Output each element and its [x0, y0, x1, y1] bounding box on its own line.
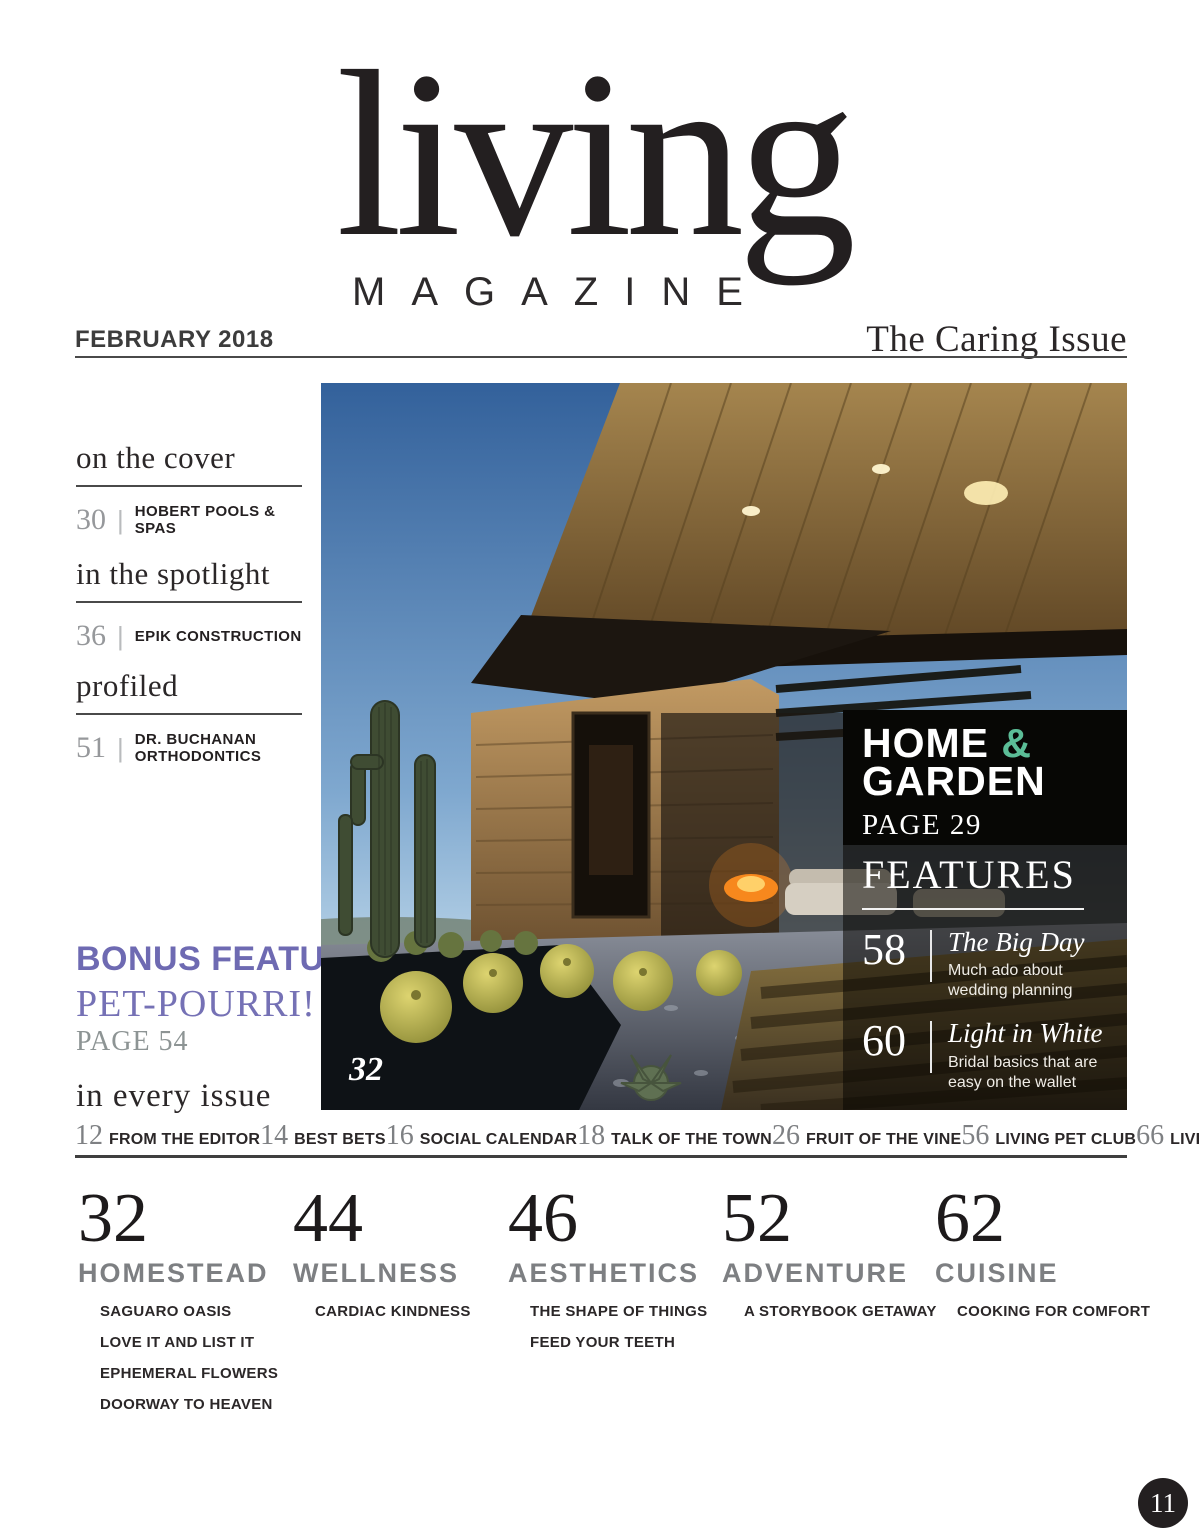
department-adventure: 52 ADVENTURE A STORYBOOK GETAWAY	[722, 1184, 937, 1320]
item-label: LIVING PET CLUB	[995, 1131, 1136, 1148]
department-name: HOMESTEAD	[78, 1258, 278, 1289]
page-number: 11	[1150, 1488, 1176, 1519]
feature-divider	[930, 1021, 932, 1073]
entry-divider: |	[117, 505, 124, 536]
every-issue-item: 12FROM THE EDITOR	[75, 1120, 260, 1152]
entry-page-number: 30	[76, 503, 106, 537]
home-garden-line1: HOME &	[862, 724, 1127, 762]
department-page-number: 46	[508, 1184, 707, 1254]
article-title: LOVE IT AND LIST IT	[100, 1334, 278, 1351]
home-garden-page: PAGE 29	[862, 809, 1127, 842]
department-homestead: 32 HOMESTEAD SAGUARO OASIS LOVE IT AND L…	[78, 1184, 278, 1413]
item-label: TALK OF THE TOWN	[611, 1131, 772, 1148]
entry-label: DR. BUCHANAN ORTHODONTICS	[135, 731, 316, 765]
cover-photo: 32 HOME & GARDEN PAGE 29 FEATURES 58 The…	[321, 383, 1127, 1110]
bonus-feature-title: PET-POURRI!	[76, 982, 316, 1026]
toc-entry: 51 | DR. BUCHANAN ORTHODONTICS	[76, 731, 316, 765]
section-on-the-cover: on the cover 30 | HOBERT POOLS & SPAS	[76, 440, 316, 537]
article-title: EPHEMERAL FLOWERS	[100, 1365, 278, 1382]
item-page-number: 14	[260, 1120, 288, 1151]
entry-page-number: 51	[76, 731, 106, 765]
article-title: A STORYBOOK GETAWAY	[744, 1303, 937, 1320]
in-every-issue-heading: in every issue	[76, 1078, 271, 1115]
article-title: DOORWAY TO HEAVEN	[100, 1396, 278, 1413]
feature-description: Much ado about wedding planning	[948, 961, 1126, 1001]
article-title: SAGUARO OASIS	[100, 1303, 278, 1320]
features-panel: FEATURES 58 The Big Day Much ado about w…	[843, 845, 1127, 1110]
home-garden-banner: HOME & GARDEN PAGE 29	[843, 710, 1127, 845]
feature-description: Bridal basics that are easy on the walle…	[948, 1053, 1126, 1093]
toc-entry: 36 | EPIK CONSTRUCTION	[76, 619, 316, 653]
item-page-number: 18	[577, 1120, 605, 1151]
section-profiled: profiled 51 | DR. BUCHANAN ORTHODONTICS	[76, 668, 316, 765]
bonus-feature-page: PAGE 54	[76, 1026, 189, 1058]
department-name: CUISINE	[935, 1258, 1150, 1289]
toc-entry: 30 | HOBERT POOLS & SPAS	[76, 503, 316, 537]
department-page-number: 32	[78, 1184, 278, 1254]
department-name: ADVENTURE	[722, 1258, 937, 1289]
department-articles: SAGUARO OASIS LOVE IT AND LIST IT EPHEME…	[100, 1303, 278, 1413]
department-wellness: 44 WELLNESS CARDIAC KINDNESS	[293, 1184, 471, 1320]
every-issue-item: 14BEST BETS	[260, 1120, 386, 1152]
entry-label: HOBERT POOLS & SPAS	[135, 503, 316, 537]
section-heading: in the spotlight	[76, 556, 302, 603]
department-articles: CARDIAC KINDNESS	[315, 1303, 471, 1320]
article-title: CARDIAC KINDNESS	[315, 1303, 471, 1320]
masthead-rule	[75, 356, 1127, 358]
feature-title: Light in White	[948, 1019, 1126, 1047]
every-issue-item: 18TALK OF THE TOWN	[577, 1120, 772, 1152]
magazine-logo: living	[336, 36, 849, 274]
feature-item: 60 Light in White Bridal basics that are…	[862, 1019, 1127, 1092]
department-name: AESTHETICS	[508, 1258, 707, 1289]
section-in-the-spotlight: in the spotlight 36 | EPIK CONSTRUCTION	[76, 556, 316, 653]
department-cuisine: 62 CUISINE COOKING FOR COMFORT	[935, 1184, 1150, 1320]
feature-page-number: 58	[862, 928, 928, 1001]
section-heading: profiled	[76, 668, 302, 715]
item-label: LIVING LIKES	[1170, 1131, 1200, 1148]
home-garden-line2: GARDEN	[862, 762, 1127, 800]
in-every-issue-strip: 12FROM THE EDITOR 14BEST BETS 16SOCIAL C…	[75, 1120, 1127, 1152]
department-aesthetics: 46 AESTHETICS THE SHAPE OF THINGS FEED Y…	[508, 1184, 707, 1351]
entry-divider: |	[117, 733, 124, 764]
feature-item: 58 The Big Day Much ado about wedding pl…	[862, 928, 1127, 1001]
features-heading: FEATURES	[862, 851, 1084, 910]
feature-page-number: 60	[862, 1019, 928, 1092]
feature-divider	[930, 930, 932, 982]
item-label: FROM THE EDITOR	[109, 1131, 260, 1148]
department-articles: A STORYBOOK GETAWAY	[744, 1303, 937, 1320]
page-number-badge: 11	[1138, 1478, 1188, 1528]
department-page-number: 44	[293, 1184, 471, 1254]
item-page-number: 12	[75, 1120, 103, 1151]
every-issue-rule	[75, 1155, 1127, 1158]
entry-page-number: 36	[76, 619, 106, 653]
item-page-number: 16	[386, 1120, 414, 1151]
section-heading: on the cover	[76, 440, 302, 487]
item-page-number: 26	[772, 1120, 800, 1151]
department-articles: COOKING FOR COMFORT	[957, 1303, 1150, 1320]
department-page-number: 62	[935, 1184, 1150, 1254]
magazine-toc-page: living MAGAZINE FEBRUARY 2018 The Caring…	[0, 0, 1200, 1538]
department-page-number: 52	[722, 1184, 937, 1254]
item-page-number: 56	[961, 1120, 989, 1151]
feature-title: The Big Day	[948, 928, 1126, 956]
article-title: THE SHAPE OF THINGS	[530, 1303, 707, 1320]
department-name: WELLNESS	[293, 1258, 471, 1289]
every-issue-item: 26FRUIT OF THE VINE	[772, 1120, 961, 1152]
every-issue-item: 16SOCIAL CALENDAR	[386, 1120, 577, 1152]
article-title: FEED YOUR TEETH	[530, 1334, 707, 1351]
cover-photo-page-number: 32	[349, 1051, 383, 1089]
entry-divider: |	[117, 621, 124, 652]
article-title: COOKING FOR COMFORT	[957, 1303, 1150, 1320]
item-label: BEST BETS	[294, 1131, 386, 1148]
department-articles: THE SHAPE OF THINGS FEED YOUR TEETH	[530, 1303, 707, 1351]
item-page-number: 66	[1136, 1120, 1164, 1151]
every-issue-item: 56LIVING PET CLUB	[961, 1120, 1136, 1152]
entry-label: EPIK CONSTRUCTION	[135, 628, 302, 645]
item-label: FRUIT OF THE VINE	[806, 1131, 961, 1148]
issue-name: The Caring Issue	[866, 318, 1127, 361]
every-issue-item: 66LIVING LIKES	[1136, 1120, 1200, 1152]
issue-date: FEBRUARY 2018	[75, 326, 274, 354]
item-label: SOCIAL CALENDAR	[420, 1131, 577, 1148]
